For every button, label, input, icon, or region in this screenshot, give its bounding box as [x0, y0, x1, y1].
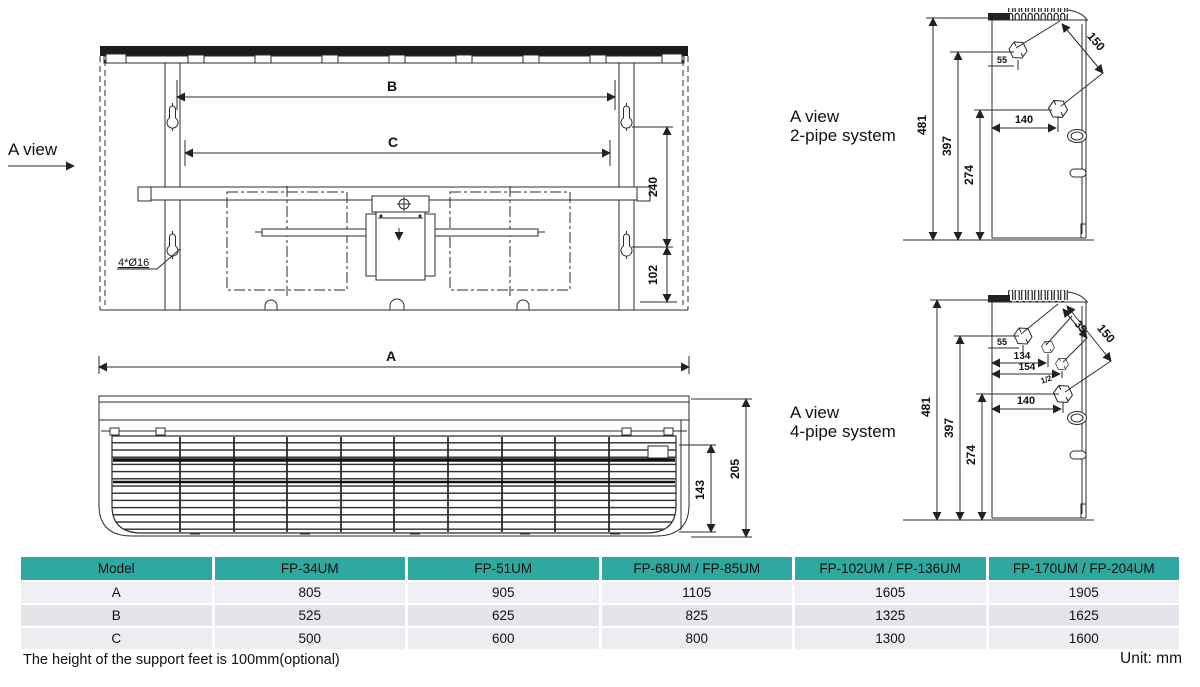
bottom-tabs — [265, 299, 529, 310]
table-header-fp51: FP-51UM — [408, 557, 599, 580]
four-pipe-side-view: A view 4-pipe system 481 397 274 55 — [790, 290, 1118, 520]
dim-label-143: 143 — [693, 480, 707, 500]
two-pipe-side-view: A view 2-pipe system 481 397 274 140 55 — [790, 8, 1108, 240]
support-feet-footnote: The height of the support feet is 100mm(… — [23, 652, 340, 668]
dim-label-a: A — [386, 348, 396, 364]
row-c-value: 500 — [215, 628, 406, 649]
row-a-value: 1105 — [602, 582, 793, 603]
row-b-value: 1625 — [989, 605, 1180, 626]
four-pipe-title-line1: A view — [790, 403, 840, 422]
row-b-value: 825 — [602, 605, 793, 626]
dim-label-240: 240 — [646, 177, 660, 197]
dim-label-134: 134 — [1014, 351, 1031, 362]
two-pipe-title-line1: A view — [790, 107, 840, 126]
row-c-label: C — [21, 628, 212, 649]
dim-label-half-inch: 1/2 — [1040, 373, 1054, 385]
side-body-outline — [988, 20, 1088, 238]
front-top-panel — [99, 396, 689, 420]
pipe-connector-hex — [1009, 42, 1027, 58]
front-view-dim-a: A — [99, 348, 689, 374]
drawings-canvas: B C 240 102 A view 4*Ø16 A — [0, 0, 1200, 545]
row-a-value: 1605 — [795, 582, 986, 603]
dim-label-140: 140 — [1017, 395, 1035, 407]
coil-fins — [1008, 290, 1068, 302]
row-a-value: 1905 — [989, 582, 1180, 603]
dim-label-55: 55 — [997, 337, 1007, 347]
fan-shaft-right — [428, 229, 538, 236]
table-header-model: Model — [21, 557, 212, 580]
front-view-dim-205: 205 — [691, 399, 752, 537]
dim-label-397: 397 — [940, 136, 954, 156]
dim-label-397: 397 — [942, 418, 956, 438]
table-header-fp68-85: FP-68UM / FP-85UM — [602, 557, 793, 580]
unit-label: Unit: mm — [1120, 650, 1182, 668]
row-c-value: 800 — [602, 628, 793, 649]
drain-grommet — [1068, 130, 1087, 143]
drain-grommet — [1068, 412, 1087, 425]
fan-shaft-left — [262, 229, 372, 236]
dim-label-c: C — [388, 134, 398, 150]
dim-label-274: 274 — [964, 445, 978, 465]
row-a-value: 905 — [408, 582, 599, 603]
dim-label-140: 140 — [1015, 114, 1033, 126]
mounting-rail-clips — [106, 54, 682, 63]
row-c-value: 600 — [408, 628, 599, 649]
back-view-drawing: B C 240 102 A view 4*Ø16 — [8, 46, 688, 310]
table-header-fp34: FP-34UM — [215, 557, 406, 580]
row-c-value: 1300 — [795, 628, 986, 649]
table-header-fp102-136: FP-102UM / FP-136UM — [795, 557, 986, 580]
table-header-fp170-204: FP-170UM / FP-204UM — [989, 557, 1180, 580]
dim-label-481: 481 — [915, 115, 929, 135]
row-b-value: 1325 — [795, 605, 986, 626]
row-b-value: 625 — [408, 605, 599, 626]
motor-assembly — [366, 196, 435, 280]
technical-drawing-page: B C 240 102 A view 4*Ø16 A — [0, 0, 1200, 687]
side-slot — [1070, 169, 1086, 177]
dim-label-150: 150 — [1084, 29, 1108, 54]
side-slot — [1070, 451, 1086, 459]
side-body-outline — [988, 302, 1088, 518]
dim-label-481: 481 — [919, 397, 933, 417]
dim-label-55: 55 — [997, 55, 1007, 65]
dim-label-154: 154 — [1019, 362, 1036, 373]
front-view-dim-143: 143 — [679, 445, 716, 532]
nameplate — [648, 446, 668, 458]
row-a-label: A — [21, 582, 212, 603]
row-b-label: B — [21, 605, 212, 626]
front-view-drawing: A 205 143 — [99, 348, 752, 537]
four-pipe-title-line2: 4-pipe system — [790, 422, 896, 441]
pipe-connector-hex — [1056, 358, 1069, 370]
dim-label-150: 150 — [1094, 321, 1118, 346]
coil-fins — [1008, 8, 1068, 20]
row-b-value: 525 — [215, 605, 406, 626]
two-pipe-title-line2: 2-pipe system — [790, 126, 896, 145]
dim-label-274: 274 — [962, 165, 976, 185]
hole-callout-label: 4*Ø16 — [118, 257, 149, 269]
a-view-label: A view — [8, 140, 58, 159]
row-a-value: 805 — [215, 582, 406, 603]
row-c-value: 1600 — [989, 628, 1180, 649]
dim-label-b: B — [387, 78, 397, 94]
dim-label-102: 102 — [646, 265, 660, 285]
dimensions-table: Model FP-34UM FP-51UM FP-68UM / FP-85UM … — [21, 557, 1179, 649]
top-cap — [988, 295, 1010, 302]
air-outlet-grille — [112, 436, 676, 533]
dim-label-205: 205 — [728, 459, 742, 479]
top-cap — [988, 13, 1010, 20]
